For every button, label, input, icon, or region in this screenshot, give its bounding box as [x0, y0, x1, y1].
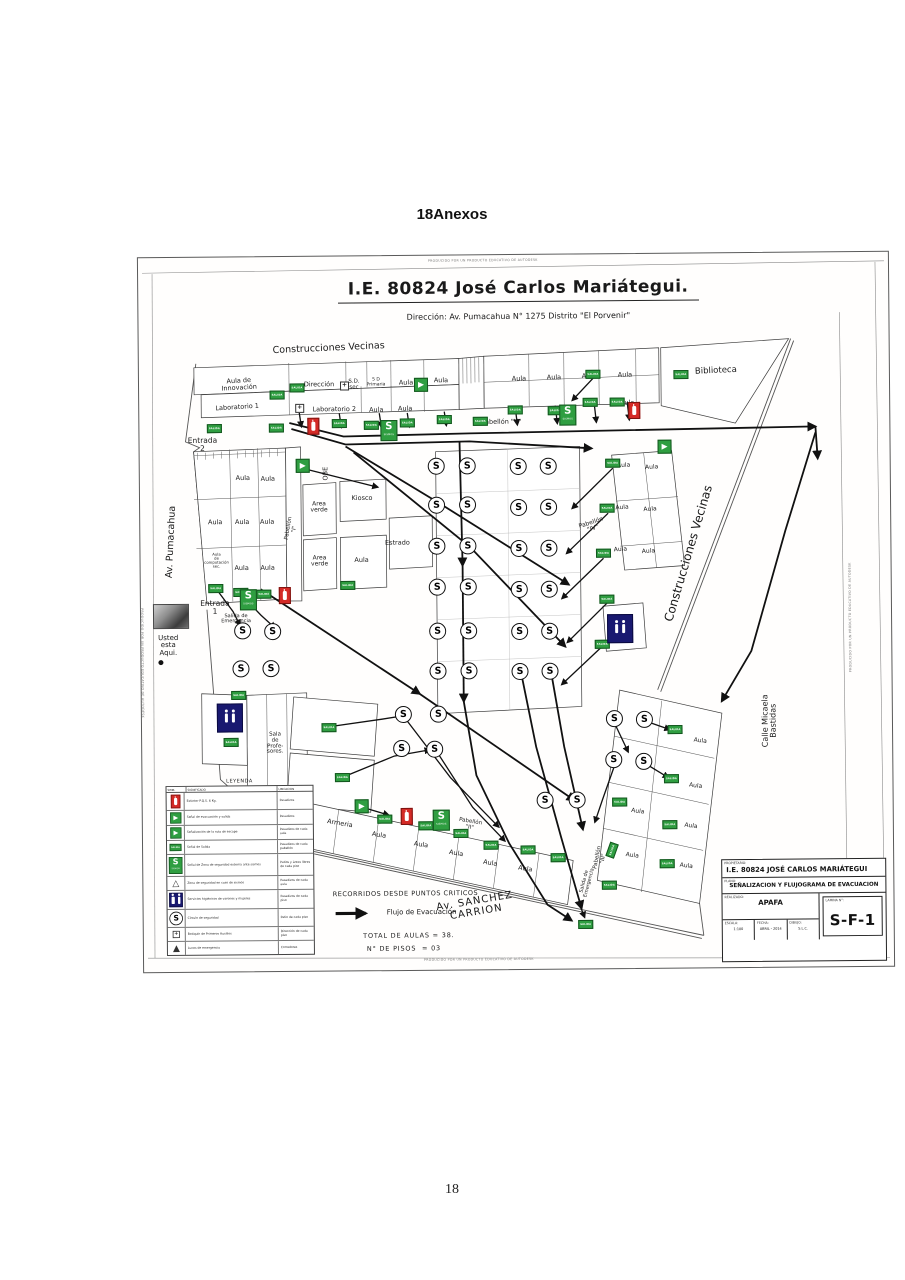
salida-sign: SALIDA	[437, 415, 452, 424]
evacuation-arrow-sign	[170, 812, 181, 823]
right-arrow-icon	[173, 815, 178, 820]
legend-icon-cell: SSISMOS	[167, 855, 185, 876]
safety-circle-S: S	[541, 581, 558, 598]
salida-sign: SALIDA	[605, 842, 618, 859]
extinguisher-icon	[311, 422, 315, 431]
safety-circle-S: S	[537, 792, 554, 809]
restroom-sign	[169, 893, 183, 908]
extinguisher-sign	[170, 795, 180, 809]
salida-sign: SALIDA	[596, 549, 611, 558]
salida-sign: SALIDA	[673, 370, 688, 379]
map-label: Flujo de Evacuación	[387, 909, 457, 917]
salida-sign: SALIDA	[521, 845, 536, 854]
legend-location: Pasadizos de cada aula	[278, 878, 313, 887]
map-label: Laboratorio 1	[215, 403, 259, 412]
safety-circle-S: S	[511, 581, 528, 598]
safety-circle-S: S	[459, 457, 476, 474]
map-label: Aula	[615, 505, 629, 512]
legend-row: SCírculo de seguridadPatio de cada piso	[168, 909, 314, 928]
draw-label: DIBUJO:	[787, 919, 818, 924]
map-label: S.D. sec	[348, 380, 359, 392]
legend-row: SSISMOSSeñal de Zona de seguridad extern…	[167, 854, 313, 877]
map-label: Estrado	[385, 540, 410, 547]
salida-sign: SALIDA	[340, 581, 355, 590]
legend-desc: Extintor P.Q.S. 6 Kg.	[185, 792, 278, 810]
extinguisher-icon	[283, 591, 287, 600]
map-label: 5 D Primaria	[367, 378, 386, 388]
right-arrow-icon	[359, 803, 365, 809]
map-label: Aula	[208, 519, 222, 526]
evacuation-arrow-sign	[170, 827, 181, 838]
map-label: Aula	[518, 864, 533, 873]
safety-circle-S: S	[232, 660, 249, 677]
map-label: Aula	[261, 476, 275, 483]
plan-value: SEÑALIZACION Y FLUJOGRAMA DE EVACUACION	[722, 882, 885, 893]
map-label: Calle Micaela Bastidas	[761, 694, 778, 747]
map-label: Aula	[512, 375, 526, 382]
map-label: RECORRIDOS DESDE PUNTOS CRITICOS	[333, 890, 478, 898]
first-aid-cross-icon: +	[295, 404, 304, 413]
legend: LEYENDA SIMB. SIGNIFICADO UBICACION Exti…	[165, 778, 315, 956]
map-label: Aula	[235, 519, 249, 526]
map-label: Aula	[618, 372, 632, 379]
salida-sign: SALIDA	[453, 829, 468, 838]
title-block-plan: PLANO: SEÑALIZACION Y FLUJOGRAMA DE EVAC…	[722, 877, 885, 894]
extinguisher-sign	[401, 808, 413, 825]
safety-circle-S: S	[234, 622, 251, 639]
legend-desc: Señalización de la ruta de escape	[185, 825, 278, 840]
plan-subtitle: Dirección: Av. Pumacahua N° 1275 Distrit…	[407, 312, 631, 322]
map-label: Aula	[689, 782, 703, 790]
map-label: Aula	[413, 840, 428, 849]
salida-sign: SALIDA	[335, 773, 350, 782]
legend-row: ▲Luces de emergenciaCorredores	[168, 941, 314, 955]
right-arrow-icon	[173, 830, 178, 835]
legend-desc: Señal de evacuación y salida	[185, 810, 278, 825]
title-block-bottom: REALIZADO: APAFA ESCALA: 1:100 FECHA: AB…	[722, 893, 885, 940]
extinguisher-icon	[632, 406, 636, 415]
map-label: Area verde	[310, 501, 327, 514]
right-arrow-icon	[418, 381, 424, 387]
legend-table: SIMB. SIGNIFICADO UBICACION Extintor P.Q…	[166, 785, 315, 956]
emergency-light-icon: ▲	[173, 943, 180, 953]
salida-sign: SALIDA	[610, 398, 625, 407]
legend-row: △Zona de seguridad en caso de sismosPasa…	[167, 876, 313, 891]
legend-icon-cell	[167, 793, 185, 810]
person-icon	[172, 896, 175, 903]
person-icon	[178, 896, 181, 903]
extinguisher-icon	[174, 798, 177, 805]
salida-sign: SALIDA	[321, 723, 336, 732]
sismo-safe-zone-sign: SSISMOS	[559, 404, 576, 425]
map-label: Aula	[483, 859, 498, 868]
legend-desc: Luces de emergencia	[186, 941, 279, 955]
watermark-bottom: PRODUCIDO POR UN PRODUCTO EDUCATIVO DE A…	[424, 957, 534, 962]
sismo-safe-zone-sign: SSISMOS	[240, 589, 257, 610]
first-aid-cross-icon: +	[340, 381, 349, 390]
map-label: Dirección	[304, 381, 334, 388]
owner-value: I.E. 80824 JOSÉ CARLOS MARIÁTEGUI	[722, 864, 885, 877]
map-label: Usted esta Aqui.	[158, 635, 178, 657]
legend-icon-cell	[167, 891, 185, 909]
safety-circle-S: S	[569, 791, 586, 808]
legend-icon-cell: +	[168, 928, 186, 941]
salida-sign: SALIDA	[256, 590, 271, 599]
date-value: ABRIL - 2014	[755, 927, 786, 931]
safety-circle-S: S	[606, 710, 623, 727]
draw-value: S.L.C.	[787, 926, 818, 930]
legend-desc: Señal de Zona de seguridad externa ante …	[185, 854, 278, 876]
restroom-sign	[217, 703, 243, 732]
legend-row: Extintor P.Q.S. 6 Kg.Pasadizos	[167, 792, 313, 811]
sheet-number-cell: LAMINA N°: S-F-1	[822, 896, 882, 937]
map-label: Pabellón "I"	[285, 517, 300, 542]
map-label: Sala de Profe- sores.	[267, 733, 284, 756]
salida-sign: SALIDA	[578, 920, 593, 929]
map-label: Aula	[236, 475, 250, 482]
salida-sign: SALIDA	[585, 370, 600, 379]
safety-circle-S: S	[428, 458, 445, 475]
safety-circle-S: S	[510, 540, 527, 557]
legend-desc: Servicios higiénicos de varones y mujere…	[185, 890, 278, 909]
salida-sign: SALIDA	[270, 391, 285, 400]
safety-circle-S: S	[605, 751, 622, 768]
map-label: Entrada 2	[188, 437, 218, 453]
salida-sign: SALIDA	[583, 398, 598, 407]
salida-sign: SALIDA	[332, 419, 347, 428]
map-label: Aula	[625, 852, 639, 860]
map-label: Aula	[434, 377, 448, 384]
sheet-label: LAMINA N°:	[824, 897, 882, 903]
legend-row: Señal de evacuación y salidaPasadizos	[167, 810, 313, 826]
map-label: Aula	[645, 464, 659, 471]
map-label: Armeria	[327, 818, 354, 829]
legend-location: Patios y áreas libres de cada piso	[278, 860, 313, 869]
right-arrow-icon	[300, 462, 306, 468]
legend-location: Pasadizos de cada piso	[278, 894, 313, 903]
safety-circle-S: S	[636, 711, 653, 728]
watermark-left: PRODUCIDO POR UN PRODUCTO EDUCATIVO DE A…	[140, 608, 145, 718]
legend-icon-cell	[167, 826, 185, 840]
map-label: Aula	[643, 506, 657, 513]
legend-icon-cell: SALIDA	[167, 841, 185, 854]
salida-sign: SALIDA	[662, 820, 677, 829]
watermark-top: PRODUCIDO POR UN PRODUCTO EDUCATIVO DE A…	[428, 258, 538, 263]
safety-circle-S: S	[511, 663, 528, 680]
map-label: Aula	[371, 831, 386, 840]
safety-circle-S: S	[541, 663, 558, 680]
map-label: Construcciones Vecinas	[662, 484, 714, 623]
map-label: Aula	[398, 405, 412, 412]
map-label: Aula	[448, 849, 463, 858]
extinguisher-sign	[279, 587, 291, 604]
safe-zone-triangle-icon: △	[172, 878, 179, 888]
map-label: Aula	[260, 519, 274, 526]
legend-location: Pasadizos de cada aula	[278, 827, 313, 836]
salida-sign: SALIDA	[483, 841, 498, 850]
map-label: Av. Pumacahua	[165, 506, 178, 579]
made-by-cell: REALIZADO: APAFA	[722, 893, 818, 920]
map-label: Aula	[369, 407, 383, 414]
salida-sign: SALIDA	[667, 725, 682, 734]
safety-circle-S: S	[460, 662, 477, 679]
plan-title: I.E. 80824 José Carlos Mariátegui.	[338, 278, 699, 303]
extinguisher-sign	[307, 418, 319, 435]
salida-sign: SALIDA	[269, 424, 284, 433]
extinguisher-sign	[628, 402, 640, 419]
safety-circle-S: S	[540, 499, 557, 516]
legend-icon-cell: ▲	[168, 942, 186, 955]
right-arrow-icon	[662, 443, 668, 449]
made-by-value: APAFA	[723, 898, 819, 907]
salida-sign: SALIDA	[508, 405, 523, 414]
person-icon	[622, 624, 625, 633]
safety-circle-S: S	[459, 496, 476, 513]
safety-circle-S: S	[429, 663, 446, 680]
legend-desc: Botiquín de Primeros Auxilios	[186, 927, 279, 941]
salida-sign: SALIDA	[660, 859, 675, 868]
legend-header-loc: UBICACION	[278, 786, 313, 791]
safety-circle-S: S	[460, 622, 477, 639]
salida-sign: SALIDA	[231, 691, 246, 700]
safety-circle-S: S	[429, 623, 446, 640]
safety-circle-S: S	[429, 579, 446, 596]
safety-circle-S: S	[264, 623, 281, 640]
safety-circle-S: S	[393, 740, 410, 757]
person-icon	[615, 624, 618, 633]
salida-sign: SALIDA	[418, 821, 433, 830]
safety-circle-S: S	[428, 497, 445, 514]
sheet-number: S-F-1	[824, 911, 882, 930]
you-are-here-dot	[158, 660, 163, 665]
safety-circle-S: S	[510, 458, 527, 475]
safety-circle-S: S	[511, 623, 528, 640]
safety-circle-S: S	[428, 538, 445, 555]
salida-sign: SALIDA	[207, 424, 222, 433]
salida-sign: SALIDA	[599, 595, 614, 604]
legend-icon-cell: S	[168, 910, 186, 927]
draw-cell: DIBUJO: S.L.C.	[787, 919, 819, 939]
map-label: Aula	[642, 548, 656, 555]
legend-row: Señalización de la ruta de escapePasadiz…	[167, 825, 313, 841]
legend-row: +Botiquín de Primeros AuxiliosDirección …	[168, 927, 314, 942]
evacuation-plan-sheet: I.E. 80824 José Carlos Mariátegui. Direc…	[137, 251, 895, 974]
sismo-safe-zone-sign: SSISMOS	[380, 420, 397, 441]
safety-circle-S: S	[460, 578, 477, 595]
legend-location: Pasadizos de cada pabellón	[278, 842, 313, 851]
salida-sign: SALIDA	[551, 853, 566, 862]
location-photo	[153, 604, 189, 629]
map-label: Aula	[631, 808, 645, 816]
legend-header-desc: SIGNIFICADO	[187, 786, 278, 792]
salida-sign: SALIDA	[400, 418, 415, 427]
safety-circle-S: S	[540, 540, 557, 557]
salida-sign: SALIDA	[170, 844, 182, 851]
evacuation-arrow-sign	[414, 378, 428, 392]
salida-sign: SALIDA	[377, 815, 392, 824]
map-label: Aula de Innovación	[221, 377, 257, 393]
safety-circle-S: S	[169, 912, 183, 926]
title-block-owner: PROPIETARIO: I.E. 80824 JOSÉ CARLOS MARI…	[722, 859, 885, 878]
safety-circle-S: S	[426, 741, 443, 758]
person-icon	[224, 714, 227, 723]
safety-circle-S: S	[395, 706, 412, 723]
map-label: Pabellón "IV"	[578, 516, 606, 536]
salida-sign: SALIDA	[664, 774, 679, 783]
evacuation-arrow-sign	[658, 440, 672, 454]
map-label: Kiosco	[351, 495, 372, 502]
safety-circle-S: S	[459, 537, 476, 554]
safety-circle-S: S	[541, 623, 558, 640]
map-label: Aula	[354, 557, 368, 564]
map-label: Aula	[399, 379, 413, 386]
safety-circle-S: S	[635, 753, 652, 770]
scale-cell: ESCALA: 1:100	[723, 920, 756, 940]
salida-sign: SALIDA	[364, 421, 379, 430]
scale-label: ESCALA:	[723, 920, 754, 925]
map-label: Biblioteca	[695, 366, 737, 377]
salida-sign: SALIDA	[605, 459, 620, 468]
safety-circle-S: S	[430, 706, 447, 723]
map-label: Aula	[260, 565, 274, 572]
page-title: 18Anexos	[417, 206, 488, 223]
first-aid-cross-icon: +	[173, 931, 180, 938]
legend-location: Pasadizos	[278, 814, 313, 820]
salida-sign: SALIDA	[600, 504, 615, 513]
map-label: Aula de computación sec.	[204, 553, 229, 569]
salida-sign: SALIDA	[612, 798, 627, 807]
extinguisher-icon	[405, 812, 409, 821]
legend-location: Patio de cada piso	[279, 914, 314, 920]
map-label: Aula	[614, 547, 628, 554]
legend-desc: Señal de Salida	[185, 840, 278, 854]
sismo-safe-zone-sign: SSISMOS	[169, 857, 183, 874]
map-label: TOTAL DE AULAS = 38.	[363, 932, 454, 940]
page-number: 18	[445, 1182, 459, 1198]
salida-sign: SALIDA	[208, 584, 223, 593]
person-icon	[232, 713, 235, 722]
salida-sign: SALIDA	[289, 383, 304, 392]
salida-sign: SALIDA	[224, 738, 239, 747]
legend-location: Pasadizos	[278, 797, 313, 803]
title-block: PROPIETARIO: I.E. 80824 JOSÉ CARLOS MARI…	[721, 858, 887, 962]
legend-icon-cell	[167, 811, 185, 825]
map-label: Area verde	[311, 555, 328, 568]
map-label: Aula	[234, 565, 248, 572]
salida-sign: SALIDA	[602, 881, 617, 890]
legend-desc: Zona de seguridad en caso de sismos	[185, 876, 278, 890]
salida-sign: SALIDA	[473, 417, 488, 426]
document-page: { "page": { "heading": "18Anexos", "page…	[0, 0, 905, 1280]
date-cell: FECHA: ABRIL - 2014	[755, 920, 788, 940]
scale-value: 1:100	[723, 927, 754, 931]
sismo-safe-zone-sign: SSISMOS	[433, 810, 450, 831]
legend-icon-cell: △	[167, 877, 185, 890]
evacuation-arrow-sign	[355, 799, 369, 813]
legend-desc: Círculo de seguridad	[186, 909, 279, 927]
date-label: FECHA:	[755, 920, 786, 925]
legend-location: Dirección de cada piso	[279, 929, 314, 938]
map-label: N° DE PISOS = 03	[367, 945, 441, 952]
legend-row: SALIDASeñal de SalidaPasadizos de cada p…	[167, 840, 313, 855]
map-label: Salida de Emergencia	[579, 867, 597, 898]
map-label: Laboratorio 2	[312, 406, 356, 413]
legend-row: Servicios higiénicos de varones y mujere…	[167, 890, 313, 910]
map-label: Aula	[679, 863, 693, 871]
legend-header-symbol: SIMB.	[167, 787, 187, 792]
watermark-right: PRODUCIDO POR UN PRODUCTO EDUCATIVO DE A…	[848, 562, 853, 672]
map-label: Construcciones Vecinas	[272, 341, 384, 356]
map-label: Aula	[693, 737, 707, 745]
safety-circle-S: S	[262, 660, 279, 677]
map-label: Aula	[547, 374, 561, 381]
safety-circle-S: S	[540, 458, 557, 475]
map-label: OBE	[322, 467, 329, 481]
safety-circle-S: S	[510, 499, 527, 516]
legend-location: Corredores	[279, 944, 314, 950]
evacuation-arrow-sign	[296, 459, 310, 473]
map-label: Aula	[684, 822, 698, 830]
restroom-sign	[607, 614, 633, 643]
